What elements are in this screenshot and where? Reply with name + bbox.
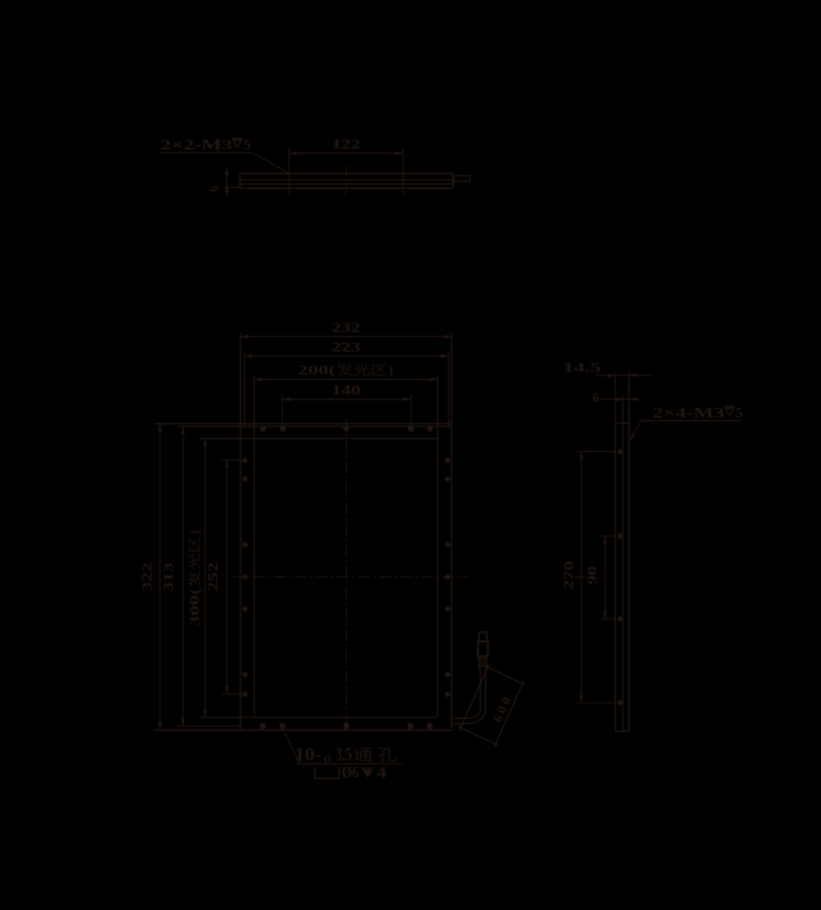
svg-text:): ) bbox=[389, 364, 394, 379]
svg-text:14.5: 14.5 bbox=[563, 360, 601, 375]
svg-text:): ) bbox=[188, 530, 203, 535]
svg-text:313: 313 bbox=[162, 563, 177, 592]
svg-text:270: 270 bbox=[562, 561, 577, 590]
svg-text:2×2-M3: 2×2-M3 bbox=[161, 138, 233, 154]
svg-text:5: 5 bbox=[736, 406, 743, 422]
svg-text:300(: 300( bbox=[188, 588, 203, 626]
svg-text:2×4-M3: 2×4-M3 bbox=[653, 406, 725, 422]
svg-text:Ø: Ø bbox=[324, 755, 332, 766]
svg-text:252: 252 bbox=[207, 563, 222, 592]
svg-text:223: 223 bbox=[332, 340, 361, 355]
svg-text:200(: 200( bbox=[298, 364, 336, 379]
svg-text:6: 6 bbox=[206, 185, 221, 192]
svg-text:Ø6: Ø6 bbox=[342, 765, 360, 782]
svg-text:6: 6 bbox=[592, 390, 599, 405]
svg-text:232: 232 bbox=[332, 321, 361, 336]
svg-text:3.5: 3.5 bbox=[336, 745, 353, 765]
svg-text:4: 4 bbox=[377, 765, 387, 782]
svg-text:322: 322 bbox=[141, 563, 156, 592]
svg-text:122: 122 bbox=[332, 138, 361, 153]
svg-text:140: 140 bbox=[332, 384, 361, 399]
svg-text:90: 90 bbox=[585, 566, 600, 585]
svg-text:10-: 10- bbox=[295, 745, 322, 765]
svg-text:5: 5 bbox=[244, 138, 251, 154]
